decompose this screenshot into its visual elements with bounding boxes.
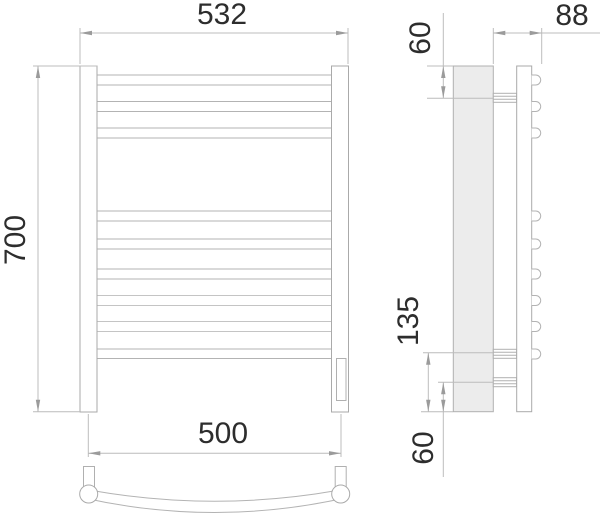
towel-rail-drawing bbox=[0, 0, 600, 523]
side-rail-end bbox=[532, 239, 541, 249]
bottom-bracket bbox=[335, 467, 346, 488]
front-rail bbox=[97, 102, 332, 112]
dim-arrow bbox=[426, 400, 430, 412]
side-rail-end bbox=[532, 322, 541, 332]
side-rail-end bbox=[532, 128, 541, 138]
dim-arrow bbox=[441, 400, 445, 412]
dim-arrow bbox=[88, 451, 100, 455]
technical-drawing-canvas: 532 88 700 60 135 60 500 bbox=[0, 0, 600, 523]
side-bracket bbox=[493, 349, 516, 358]
dim-arrow bbox=[80, 31, 92, 35]
side-rail-end bbox=[532, 102, 541, 112]
dim-label-side-bracket-spacing: 135 bbox=[394, 296, 424, 346]
bottom-view bbox=[80, 467, 350, 513]
side-bracket bbox=[493, 93, 516, 102]
front-rail bbox=[97, 239, 332, 249]
side-rail-end bbox=[532, 269, 541, 279]
dim-label-side-depth: 88 bbox=[555, 1, 588, 31]
dim-arrow bbox=[36, 400, 40, 412]
front-view bbox=[80, 66, 349, 412]
side-collector-tube bbox=[517, 66, 532, 412]
dim-arrow bbox=[441, 382, 445, 394]
side-brackets bbox=[493, 93, 516, 386]
front-rail bbox=[97, 322, 332, 332]
bottom-post-circle bbox=[80, 485, 98, 503]
front-rail bbox=[97, 128, 332, 138]
dim-arrow bbox=[493, 31, 505, 35]
bottom-bracket bbox=[84, 467, 95, 488]
dim-label-rail-span-bottom: 500 bbox=[198, 419, 248, 449]
side-rail-end bbox=[532, 211, 541, 221]
heater-element bbox=[337, 359, 347, 401]
side-rail-end bbox=[532, 75, 541, 85]
side-rail-end bbox=[532, 296, 541, 306]
front-rail bbox=[97, 211, 332, 221]
dim-532 bbox=[80, 28, 348, 64]
bottom-view-arc bbox=[84, 491, 345, 513]
dim-88 bbox=[493, 28, 600, 64]
dim-label-side-bottom-offset: 60 bbox=[409, 431, 439, 464]
front-rail bbox=[97, 349, 332, 359]
bottom-post-circle bbox=[332, 485, 350, 503]
dim-arrow bbox=[530, 31, 542, 35]
dim-arrow bbox=[336, 31, 348, 35]
side-rail-ends bbox=[532, 75, 541, 359]
dim-arrow bbox=[329, 451, 341, 455]
dim-label-side-top-offset: 60 bbox=[406, 21, 436, 54]
dim-label-front-height: 700 bbox=[1, 215, 31, 265]
front-rail bbox=[97, 296, 332, 306]
front-rails bbox=[97, 75, 332, 359]
dim-arrow bbox=[441, 86, 445, 98]
front-rail bbox=[97, 269, 332, 279]
front-left-post bbox=[80, 66, 97, 412]
side-wall-panel bbox=[453, 66, 493, 412]
side-bracket bbox=[493, 378, 516, 387]
side-view bbox=[453, 66, 540, 412]
front-rail bbox=[97, 75, 332, 85]
dim-arrow bbox=[426, 353, 430, 365]
side-rail-end bbox=[532, 349, 541, 359]
dim-arrow bbox=[36, 66, 40, 78]
dim-arrow bbox=[441, 66, 445, 78]
dim-label-front-width-top: 532 bbox=[197, 0, 247, 30]
